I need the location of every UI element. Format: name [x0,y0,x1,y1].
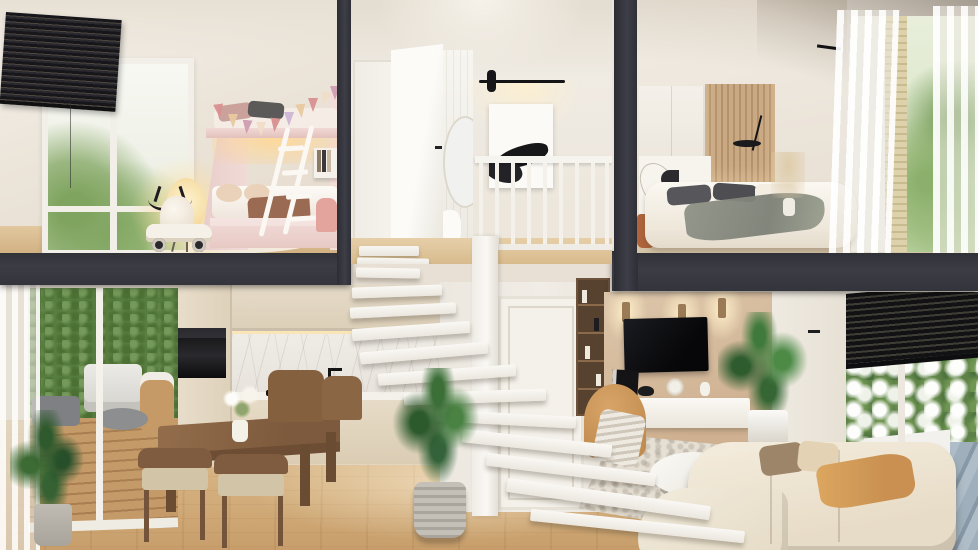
closed-door [353,60,393,250]
dining-chair-back [268,370,324,422]
pink-desk-chair [316,198,337,232]
table-leg [326,432,336,482]
baluster [575,163,579,247]
black-venetian-blind [0,12,122,112]
stair-tread [356,267,420,278]
dining-chair-front [214,454,288,474]
chair-cushion [218,474,284,496]
stair-step [359,246,419,256]
door-mullion [96,288,103,528]
shelf-object [596,374,601,386]
baluster [605,163,609,247]
door-handle [435,146,442,149]
baluster [511,163,515,247]
floor-slab-left [0,250,351,285]
master-bedroom [637,0,978,253]
indoor-plant-pot [34,504,72,546]
face-pillow [216,184,242,202]
apartment-cutaway-render [0,0,978,550]
bunk-platform [206,128,337,138]
dining-chair-back [322,376,362,420]
living-plant-pot [748,410,788,444]
black-blind [846,292,978,369]
baluster [543,163,547,247]
baluster [591,163,595,247]
patio-sofa [84,364,142,412]
arc-sconce-shade [733,140,761,147]
floor-slab-right [612,251,978,291]
toy-wheel [192,238,206,252]
bunk-pillow-gray [247,100,284,119]
table-leg [300,444,310,506]
pampas-vase [783,198,795,216]
sheer-curtain-right [933,6,978,253]
book [322,150,326,172]
sheer-curtain-left [829,10,899,253]
ribbed-planter [414,482,466,538]
baluster [527,163,531,247]
wall-light-body [487,70,496,92]
book [317,150,321,172]
partition-wall-right [614,0,638,291]
blind-cord [70,100,71,188]
sofa-chaise [638,488,788,550]
baluster [479,163,483,247]
shelf-object [594,318,599,331]
chair-leg [144,490,149,542]
flower-vase [232,420,248,442]
ladder-rung [282,169,308,175]
dining-chair-front [138,448,212,468]
kids-bedroom [0,0,337,253]
chair-cushion [142,468,208,490]
baluster [559,163,563,247]
upstairs-landing [351,0,612,264]
built-in-oven [176,328,226,378]
decor-object [638,386,654,396]
stair-step [357,257,429,264]
baluster [495,163,499,247]
chair-leg [200,490,205,540]
decor-vase [700,382,710,396]
tv [623,317,708,373]
book [327,150,331,172]
shelf-object [582,290,587,303]
fiddle-leaf-plant [392,368,484,498]
chair-leg [278,496,283,546]
toy-wheel [152,238,166,252]
partition-wall-left [337,0,351,285]
shelf-object [585,346,590,359]
handrail [475,156,612,163]
patio-table [96,408,148,430]
chair-leg [222,496,227,548]
decor-disc [666,378,684,396]
pampas-grass [771,152,805,198]
flower-bouquet [216,382,268,424]
